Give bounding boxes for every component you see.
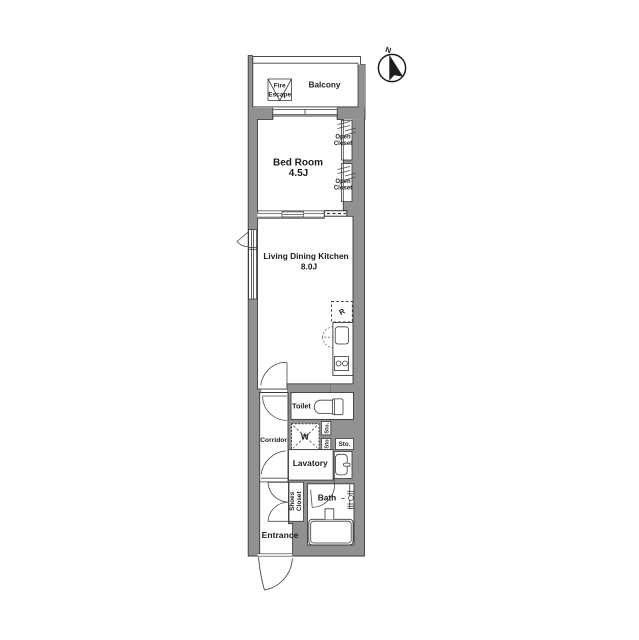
svg-text:Balcony: Balcony [309, 80, 341, 89]
svg-text:Corridor: Corridor [260, 437, 287, 444]
svg-text:Open: Open [335, 179, 351, 185]
svg-text:Open: Open [335, 135, 351, 141]
svg-text:Living Dining Kitchen: Living Dining Kitchen [263, 251, 348, 261]
svg-text:Sto: Sto [324, 439, 330, 449]
svg-text:Shoes: Shoes [289, 491, 296, 511]
svg-text:Bath: Bath [318, 492, 337, 502]
svg-text:Closet: Closet [296, 491, 303, 511]
svg-text:Sto.: Sto. [324, 422, 330, 433]
svg-text:W: W [301, 432, 309, 442]
svg-text:Bed Room: Bed Room [273, 157, 323, 168]
svg-text:Closet: Closet [334, 186, 352, 192]
svg-text:Entrance: Entrance [262, 530, 299, 540]
svg-text:Toilet: Toilet [292, 402, 311, 411]
svg-text:4.5J: 4.5J [289, 168, 308, 179]
svg-text:8.0J: 8.0J [301, 261, 318, 271]
svg-text:Fire: Fire [274, 83, 286, 90]
svg-text:Sto.: Sto. [339, 441, 351, 448]
svg-text:Escape: Escape [268, 91, 291, 98]
svg-text:Lavatory: Lavatory [293, 458, 328, 468]
svg-text:Closet: Closet [334, 141, 352, 147]
